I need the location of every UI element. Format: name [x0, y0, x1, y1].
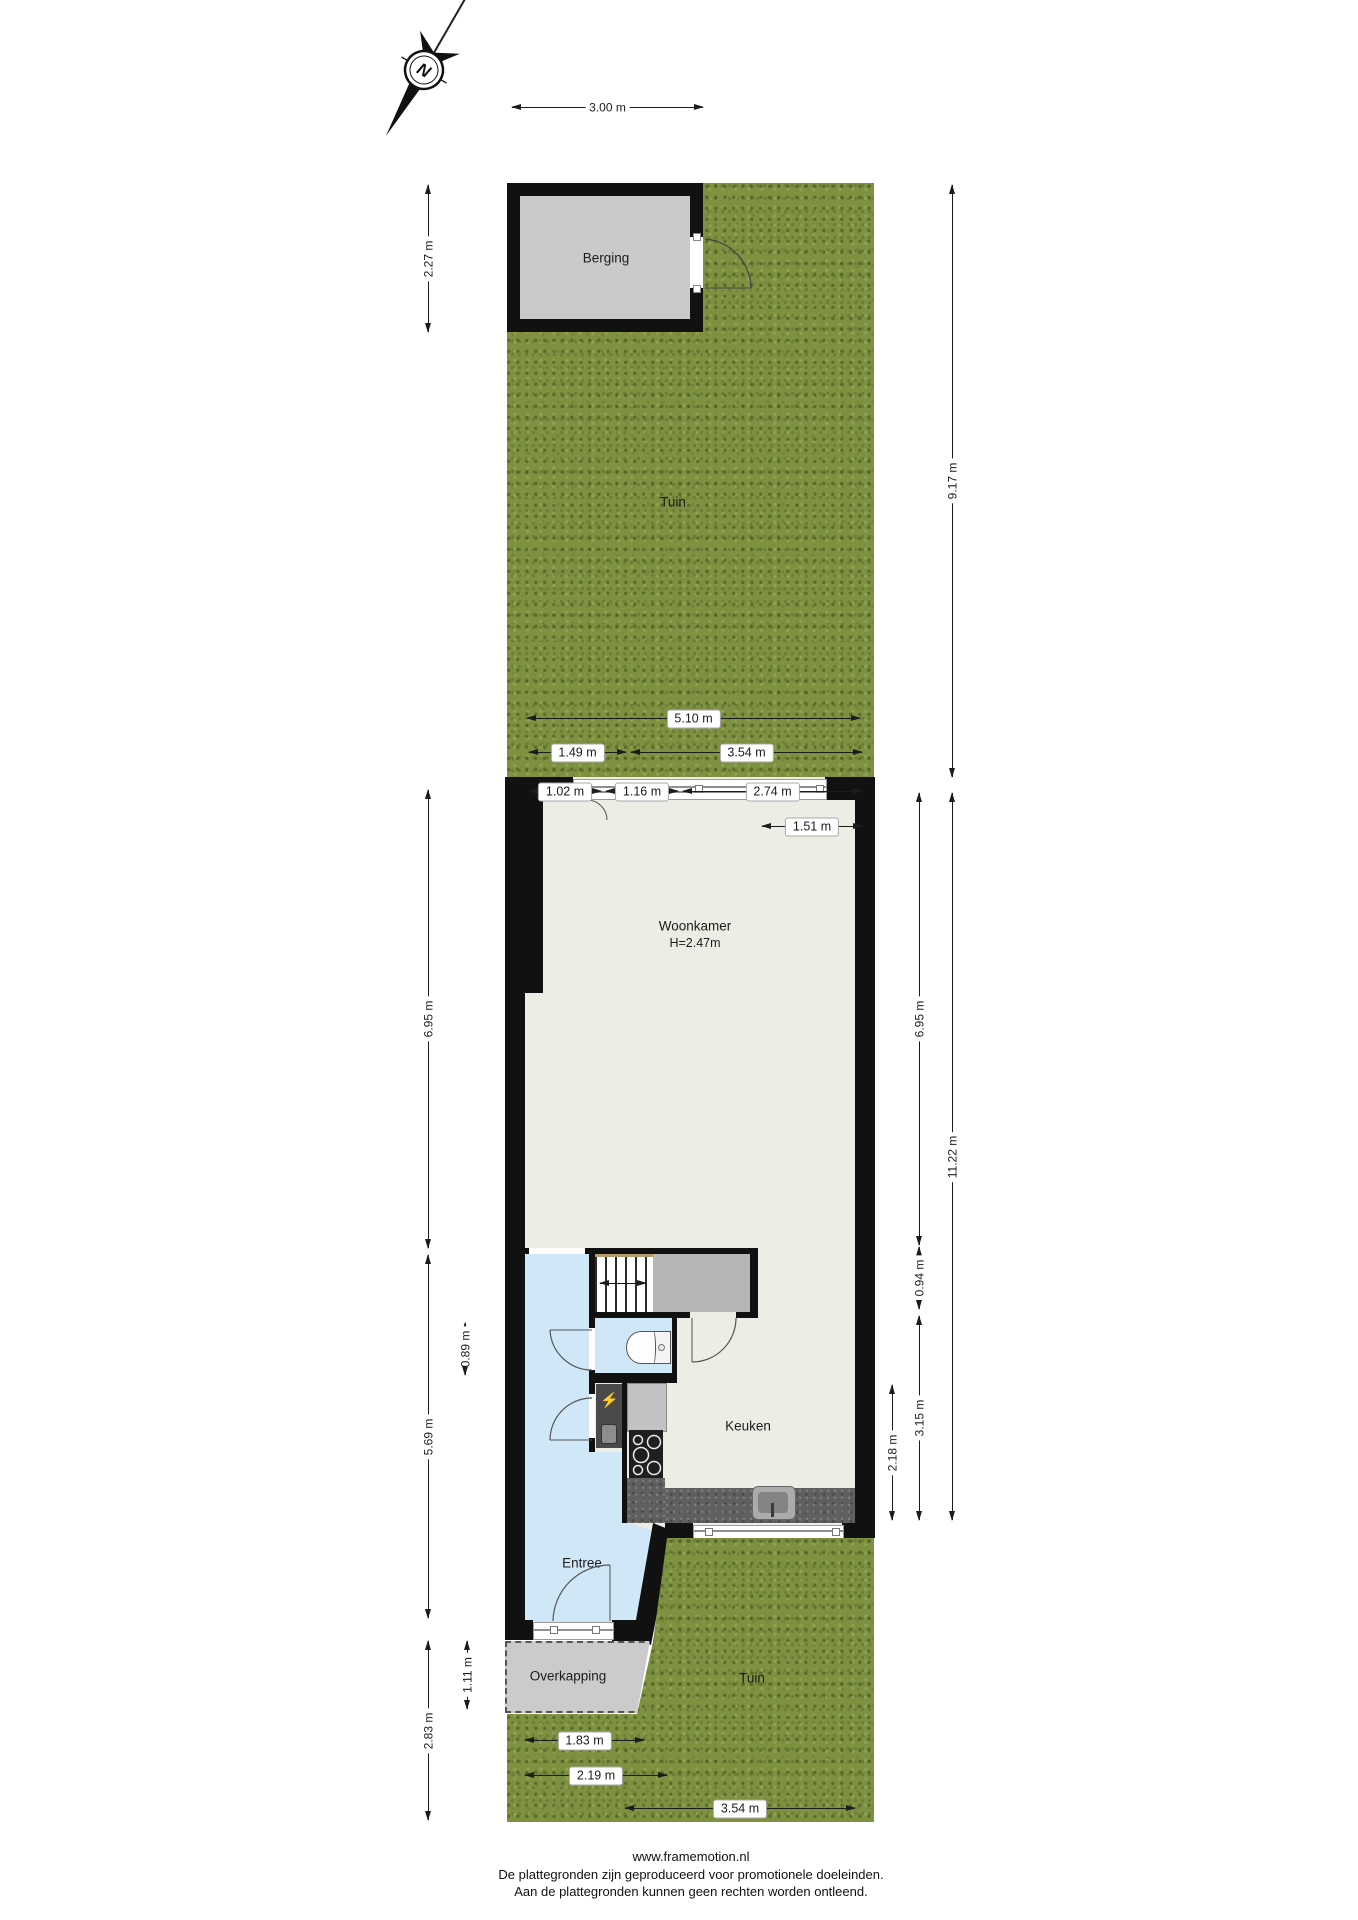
dimension-label-bottom-219: 2.19 m — [569, 1767, 623, 1786]
footer-disclaimer-1: De plattegronden zijn geproduceerd voor … — [200, 1867, 1182, 1882]
dimension-label-right-garden: 9.17 m — [946, 459, 961, 504]
front-door-strip — [533, 1622, 614, 1640]
dimension-label-left-283: 2.83 m — [422, 1708, 437, 1753]
dimension-label-left-111: 1.11 m — [461, 1653, 476, 1697]
dimension-label-left-woonkamer: 6.95 m — [422, 997, 437, 1042]
front-door-handle-2 — [592, 1626, 600, 1634]
overkapping-label: Overkapping — [530, 1669, 607, 1684]
dimension-label-left-berging: 2.27 m — [422, 236, 437, 281]
berging-door-opening — [690, 237, 703, 288]
dimension-right-218: 2.18 m — [892, 1385, 893, 1520]
kitchen-counter-left — [627, 1478, 665, 1523]
dimension-garden-116: 1.16 m — [606, 791, 678, 792]
keuken-label: Keuken — [725, 1419, 771, 1434]
dimension-label-right-315: 3.15 m — [913, 1396, 928, 1441]
livingroom-window-door-arc — [585, 798, 609, 822]
toilet-bottom-wall — [589, 1373, 677, 1383]
footer-disclaimer-2: Aan de plattegronden kunnen geen rechten… — [200, 1884, 1182, 1899]
kitchen-door-arc — [548, 1396, 594, 1442]
woonkamer-label: Woonkamer — [659, 919, 732, 934]
dimension-label-bottom-354: 3.54 m — [713, 1800, 767, 1819]
dimension-left-569: 5.69 m — [428, 1255, 429, 1618]
dimension-label-left-089: 0.89 m — [459, 1327, 474, 1372]
dimension-label-garden-102: 1.02 m — [538, 783, 592, 802]
meter-cupboard-fixture — [601, 1424, 617, 1444]
dimension-label-right-094: 0.94 m — [913, 1256, 928, 1301]
toilet-bowl — [626, 1331, 656, 1364]
dimension-label-garden-151: 1.51 m — [785, 818, 839, 837]
kitchen-counter-top-section — [627, 1383, 667, 1432]
dimension-label-left-569: 5.69 m — [422, 1414, 437, 1459]
floorplan-page: N Tuin Berging Woonkamer H=2.47m Entree — [0, 0, 1358, 1920]
stairs-closet — [653, 1254, 750, 1312]
dimension-label-garden-116: 1.16 m — [615, 783, 669, 802]
dimension-bottom-354: 3.54 m — [625, 1808, 855, 1809]
dimension-left-283: 2.83 m — [428, 1641, 429, 1820]
compass-icon: N — [372, 8, 482, 148]
dimension-label-bottom-183: 1.83 m — [557, 1732, 611, 1751]
hob-burners — [629, 1430, 663, 1478]
berging-door-arc — [703, 237, 755, 293]
dimension-garden-274: 2.74 m — [683, 791, 862, 792]
dimension-right-094: 0.94 m — [919, 1247, 920, 1309]
front-door-arc — [551, 1563, 613, 1623]
wall-left-thick — [505, 777, 543, 993]
toilet-door-arc — [548, 1328, 594, 1374]
dimension-label-right-woonkamer: 6.95 m — [913, 997, 928, 1042]
dimension-garden-151: 1.51 m — [762, 826, 862, 827]
dimension-right-woonkamer: 6.95 m — [919, 793, 920, 1245]
footer-site: www.framemotion.nl — [200, 1849, 1182, 1864]
kitchen-window-handle-1 — [705, 1528, 713, 1536]
kitchen-window — [693, 1525, 844, 1539]
toilet-tank-button — [658, 1344, 665, 1351]
kitchen-sink-tap — [771, 1503, 774, 1517]
tuin-bottom-label: Tuin — [739, 1671, 765, 1686]
dimension-garden-354: 3.54 m — [631, 752, 862, 753]
wall-right — [855, 777, 875, 1538]
dimension-bottom-219: 2.19 m — [525, 1775, 667, 1776]
dimension-label-right-total: 11.22 m — [946, 1131, 961, 1181]
dimension-label-garden-510: 5.10 m — [666, 710, 720, 729]
electric-bolt-icon: ⚡ — [600, 1392, 618, 1410]
dimension-right-garden: 9.17 m — [952, 185, 953, 777]
dimension-garden-510: 5.10 m — [527, 718, 860, 719]
dimension-garden-149: 1.49 m — [529, 752, 626, 753]
berging-door-jamb-bottom — [693, 285, 701, 293]
berging-label: Berging — [583, 251, 630, 266]
dimension-garden-102: 1.02 m — [529, 791, 601, 792]
closet-right-wall — [750, 1248, 758, 1318]
dimension-left-berging: 2.27 m — [428, 185, 429, 332]
front-wall-left — [505, 1620, 533, 1640]
dimension-top-width: 3.00 m — [512, 107, 703, 108]
dimension-left-111: 1.11 m — [467, 1641, 468, 1709]
staircase — [595, 1254, 653, 1318]
dimension-label-top-width: 3.00 m — [585, 101, 630, 116]
dimension-label-garden-274: 2.74 m — [745, 783, 799, 802]
dimension-bottom-183: 1.83 m — [525, 1740, 644, 1741]
berging-door-jamb-top — [693, 233, 701, 241]
kitchen-window-handle-2 — [832, 1528, 840, 1536]
dimension-right-total: 11.22 m — [952, 793, 953, 1520]
front-wall-right — [612, 1620, 645, 1642]
dimension-label-garden-354: 3.54 m — [719, 744, 773, 763]
tuin-top-label: Tuin — [660, 495, 686, 510]
stairs-direction-arrow — [600, 1283, 646, 1284]
dimension-right-315: 3.15 m — [919, 1316, 920, 1520]
dimension-left-089: 0.89 m — [465, 1323, 466, 1375]
woonkamer-height-label: H=2.47m — [669, 936, 720, 950]
dimension-left-woonkamer: 6.95 m — [428, 790, 429, 1248]
wall-left — [505, 993, 525, 1640]
dimension-label-right-218: 2.18 m — [886, 1430, 901, 1475]
dimension-label-garden-149: 1.49 m — [550, 744, 604, 763]
closet-door-arc — [690, 1318, 740, 1368]
front-door-handle-1 — [550, 1626, 558, 1634]
